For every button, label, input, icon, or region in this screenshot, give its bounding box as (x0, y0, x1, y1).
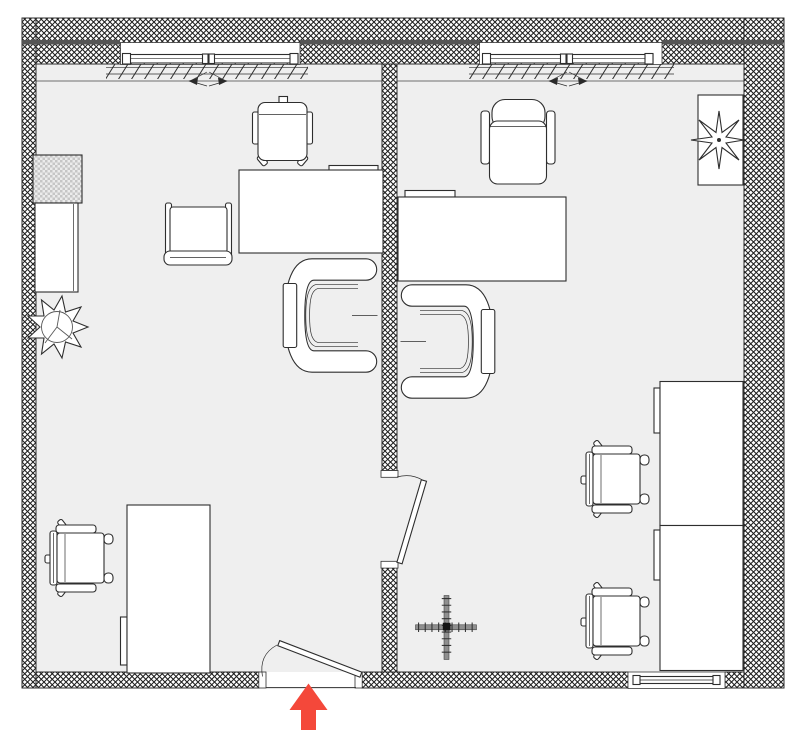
desk-surface (398, 197, 566, 281)
desk-chair-left-top[interactable] (253, 97, 313, 167)
wall-top-accent-line (22, 40, 120, 45)
wall-bottom-left-segment (36, 672, 259, 688)
cabinet-side-panel (654, 388, 660, 433)
chair-back (164, 251, 232, 265)
window-end-cap (290, 54, 298, 65)
door-jamb (381, 561, 398, 568)
window-end-cap (713, 676, 720, 685)
side-chair[interactable] (164, 203, 232, 265)
window-bottom-right-room[interactable] (628, 672, 725, 689)
desk-side-panel (121, 617, 128, 665)
desk-surface (239, 170, 383, 253)
cabinet-side-panel (654, 530, 660, 580)
wall-top-accent-line (662, 40, 783, 45)
cabinet-upper[interactable] (654, 382, 743, 526)
chair-armrest (481, 111, 490, 164)
chair-armrest (547, 111, 556, 164)
cabinet-body (660, 526, 743, 671)
cabinet-body (660, 382, 743, 526)
window-end-cap (633, 676, 640, 685)
desk-surface (127, 505, 210, 673)
window-end-cap (645, 54, 653, 65)
window-sill-hatch (469, 64, 674, 80)
floor-plan-canvas (0, 0, 810, 736)
chair-seat (258, 103, 307, 161)
wall-left (22, 18, 36, 688)
cabinet-lower[interactable] (654, 526, 743, 671)
floor-plan (0, 0, 810, 736)
corner-desk[interactable] (121, 505, 211, 673)
chair-seat (170, 207, 227, 253)
plant-center (717, 138, 721, 142)
executive-chair[interactable] (481, 100, 555, 185)
wall-top-accent-line (300, 40, 480, 45)
window-end-cap (483, 54, 491, 65)
door-jamb (381, 471, 398, 478)
window-end-cap (123, 54, 131, 65)
desk-right-room[interactable] (398, 191, 566, 282)
wall-bottom-right-segment (725, 672, 744, 688)
window-mullion (203, 54, 209, 64)
window-sill-hatch (106, 64, 308, 80)
divider-wall-lower (382, 568, 397, 672)
window-mullion (561, 54, 567, 64)
wall-right (744, 18, 784, 688)
chair-seat (490, 121, 547, 184)
desk-left-room[interactable] (239, 166, 383, 254)
divider-wall (382, 64, 397, 672)
window-mullion (209, 54, 215, 64)
divider-wall-upper (382, 64, 397, 471)
wall-bottom-middle-segment (362, 672, 628, 688)
entrance-arrow (290, 684, 328, 731)
desk-shelf (405, 191, 455, 198)
cross-center (443, 623, 451, 631)
sideboard[interactable] (35, 203, 78, 292)
window-mullion (567, 54, 573, 64)
hatched-storage-cube[interactable] (33, 155, 82, 203)
plant-on-stand[interactable] (691, 95, 744, 185)
